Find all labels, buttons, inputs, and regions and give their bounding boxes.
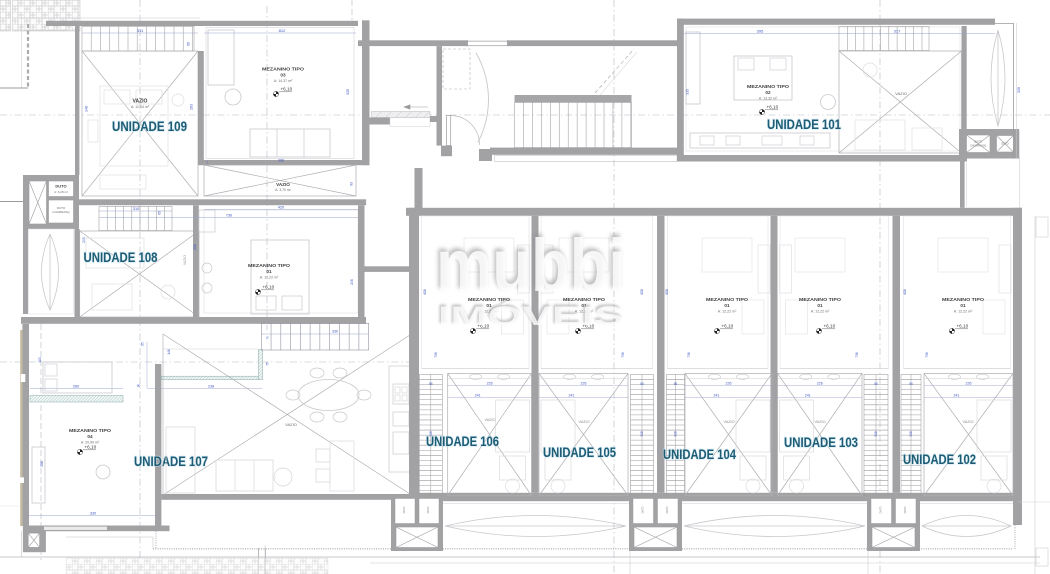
svg-text:A: 12,22 m²: A: 12,22 m² <box>954 310 973 314</box>
svg-text:66: 66 <box>429 382 433 386</box>
svg-text:241: 241 <box>569 393 575 397</box>
svg-text:65: 65 <box>187 42 191 46</box>
svg-text:148: 148 <box>85 106 89 112</box>
svg-text:438: 438 <box>640 289 644 295</box>
svg-text:+6,10: +6,10 <box>722 324 734 329</box>
svg-text:MEZANINO TIPO: MEZANINO TIPO <box>942 297 984 302</box>
svg-text:DUTO: DUTO <box>403 506 406 513</box>
svg-text:90: 90 <box>137 384 141 388</box>
svg-text:+6,10: +6,10 <box>281 87 293 92</box>
svg-text:UNIDADE 109: UNIDADE 109 <box>112 118 187 134</box>
svg-text:A: 14,37 m²: A: 14,37 m² <box>274 79 293 83</box>
svg-text:226: 226 <box>966 381 972 385</box>
svg-text:01: 01 <box>817 303 823 308</box>
svg-text:736: 736 <box>925 352 929 358</box>
svg-text:65: 65 <box>158 211 162 215</box>
svg-text:335: 335 <box>1017 87 1021 93</box>
svg-text:VAZIO: VAZIO <box>133 99 148 105</box>
svg-text:UNIDADE 101: UNIDADE 101 <box>767 116 841 132</box>
svg-text:UNIDADE 106: UNIDADE 106 <box>426 433 499 449</box>
svg-text:03: 03 <box>280 73 286 78</box>
svg-text:263: 263 <box>190 104 194 110</box>
svg-text:CHURRASQ: CHURRASQ <box>970 144 987 148</box>
svg-text:75: 75 <box>266 362 270 366</box>
svg-text:01: 01 <box>724 303 730 308</box>
svg-text:206: 206 <box>350 279 354 285</box>
svg-text:310: 310 <box>133 207 139 211</box>
svg-text:+6,10: +6,10 <box>85 445 97 450</box>
svg-text:335: 335 <box>346 89 350 95</box>
svg-text:100: 100 <box>38 357 42 363</box>
svg-text:04: 04 <box>87 434 93 439</box>
svg-text:UNIDADE 107: UNIDADE 107 <box>134 453 208 469</box>
svg-text:238: 238 <box>208 384 214 388</box>
svg-text:DUTO: DUTO <box>641 506 644 513</box>
svg-text:398: 398 <box>278 159 284 163</box>
svg-text:241: 241 <box>475 393 481 397</box>
svg-text:438: 438 <box>423 289 427 295</box>
svg-text:A: 12,22 m²: A: 12,22 m² <box>718 310 737 314</box>
svg-text:A: 11,94 m²: A: 11,94 m² <box>131 105 150 109</box>
svg-text:MEZANINO TIPO: MEZANINO TIPO <box>262 67 304 72</box>
svg-text:MEZANINO TIPO: MEZANINO TIPO <box>69 428 111 433</box>
svg-text:UNIDADE 103: UNIDADE 103 <box>784 434 858 450</box>
svg-text:DUTO: DUTO <box>879 506 882 513</box>
svg-text:VAZIO: VAZIO <box>578 420 589 424</box>
svg-text:+6,10: +6,10 <box>767 105 779 110</box>
svg-text:330: 330 <box>90 511 96 515</box>
svg-text:IMÓVEIS: IMÓVEIS <box>438 300 624 331</box>
svg-text:02: 02 <box>765 90 771 95</box>
svg-text:VAZIO: VAZIO <box>962 420 973 424</box>
svg-text:66: 66 <box>909 382 913 386</box>
svg-text:65: 65 <box>141 342 145 346</box>
svg-text:UNIDADE 105: UNIDADE 105 <box>543 444 616 460</box>
svg-text:226: 226 <box>487 381 493 385</box>
svg-text:+6,10: +6,10 <box>957 324 969 329</box>
svg-text:812: 812 <box>279 28 286 33</box>
svg-text:mubbi: mubbi <box>436 224 626 307</box>
svg-text:206: 206 <box>193 244 197 250</box>
svg-text:VAZIO: VAZIO <box>276 182 290 187</box>
svg-text:736: 736 <box>687 352 691 358</box>
svg-text:+6,10: +6,10 <box>824 324 836 329</box>
svg-text:736: 736 <box>434 352 438 358</box>
svg-text:226: 226 <box>817 381 823 385</box>
svg-text:MEZANINO TIPO: MEZANINO TIPO <box>706 297 748 302</box>
svg-text:UNIDADE 102: UNIDADE 102 <box>903 451 976 467</box>
svg-text:MEZANINO TIPO: MEZANINO TIPO <box>799 297 841 302</box>
svg-text:MEZANINO TIPO: MEZANINO TIPO <box>747 84 789 89</box>
svg-text:736: 736 <box>621 352 625 358</box>
svg-text:205: 205 <box>82 237 86 243</box>
svg-text:226: 226 <box>581 381 587 385</box>
svg-text:241: 241 <box>714 393 720 397</box>
svg-text:311: 311 <box>137 28 144 33</box>
svg-text:A: 6,28 m²: A: 6,28 m² <box>54 190 68 194</box>
svg-text:146: 146 <box>167 349 171 355</box>
svg-text:358: 358 <box>40 461 44 467</box>
svg-text:736: 736 <box>855 352 859 358</box>
svg-text:VAZIO: VAZIO <box>285 422 297 427</box>
svg-text:DUTO: DUTO <box>1001 142 1008 146</box>
svg-text:UNIDADE 108: UNIDADE 108 <box>84 249 158 265</box>
svg-text:318: 318 <box>874 431 878 437</box>
svg-text:VAZIO: VAZIO <box>723 420 734 424</box>
svg-text:VAZIO: VAZIO <box>484 418 495 422</box>
svg-text:241: 241 <box>954 393 960 397</box>
svg-text:A: 12,22 m²: A: 12,22 m² <box>260 276 279 280</box>
svg-text:A: 3,70 m²: A: 3,70 m² <box>275 188 292 192</box>
svg-text:DUTO: DUTO <box>666 506 669 513</box>
svg-text:MEZANINO TIPO: MEZANINO TIPO <box>248 263 290 268</box>
svg-text:VAZIO: VAZIO <box>814 420 825 424</box>
svg-text:318: 318 <box>909 431 913 437</box>
svg-text:DUTO: DUTO <box>904 506 907 513</box>
svg-text:438: 438 <box>903 289 907 295</box>
svg-text:730: 730 <box>226 213 232 217</box>
svg-text:318: 318 <box>674 431 678 437</box>
svg-text:VAZIO: VAZIO <box>183 255 187 265</box>
svg-text:75: 75 <box>266 336 270 340</box>
svg-text:DUTO: DUTO <box>55 184 66 189</box>
svg-text:226: 226 <box>726 381 732 385</box>
svg-text:395: 395 <box>757 28 764 33</box>
svg-text:66: 66 <box>874 382 878 386</box>
svg-text:01: 01 <box>960 303 966 308</box>
svg-text:420: 420 <box>278 205 284 209</box>
svg-text:A: 12,22 m²: A: 12,22 m² <box>811 310 830 314</box>
svg-text:66: 66 <box>640 382 644 386</box>
svg-text:260: 260 <box>73 384 79 388</box>
svg-text:318: 318 <box>640 431 644 437</box>
svg-text:317: 317 <box>894 28 901 33</box>
svg-text:93: 93 <box>350 182 354 186</box>
svg-text:01: 01 <box>266 269 272 274</box>
svg-text:CHURRASQ: CHURRASQ <box>52 210 70 214</box>
svg-text:VAZIO: VAZIO <box>895 91 907 96</box>
svg-text:241: 241 <box>805 393 811 397</box>
svg-text:+6,10: +6,10 <box>263 285 275 290</box>
svg-text:438: 438 <box>665 289 669 295</box>
svg-text:335: 335 <box>686 89 690 95</box>
svg-text:330: 330 <box>332 330 338 334</box>
svg-text:66: 66 <box>674 382 678 386</box>
svg-text:UNIDADE 104: UNIDADE 104 <box>663 446 736 462</box>
svg-text:DUTO: DUTO <box>427 506 430 513</box>
